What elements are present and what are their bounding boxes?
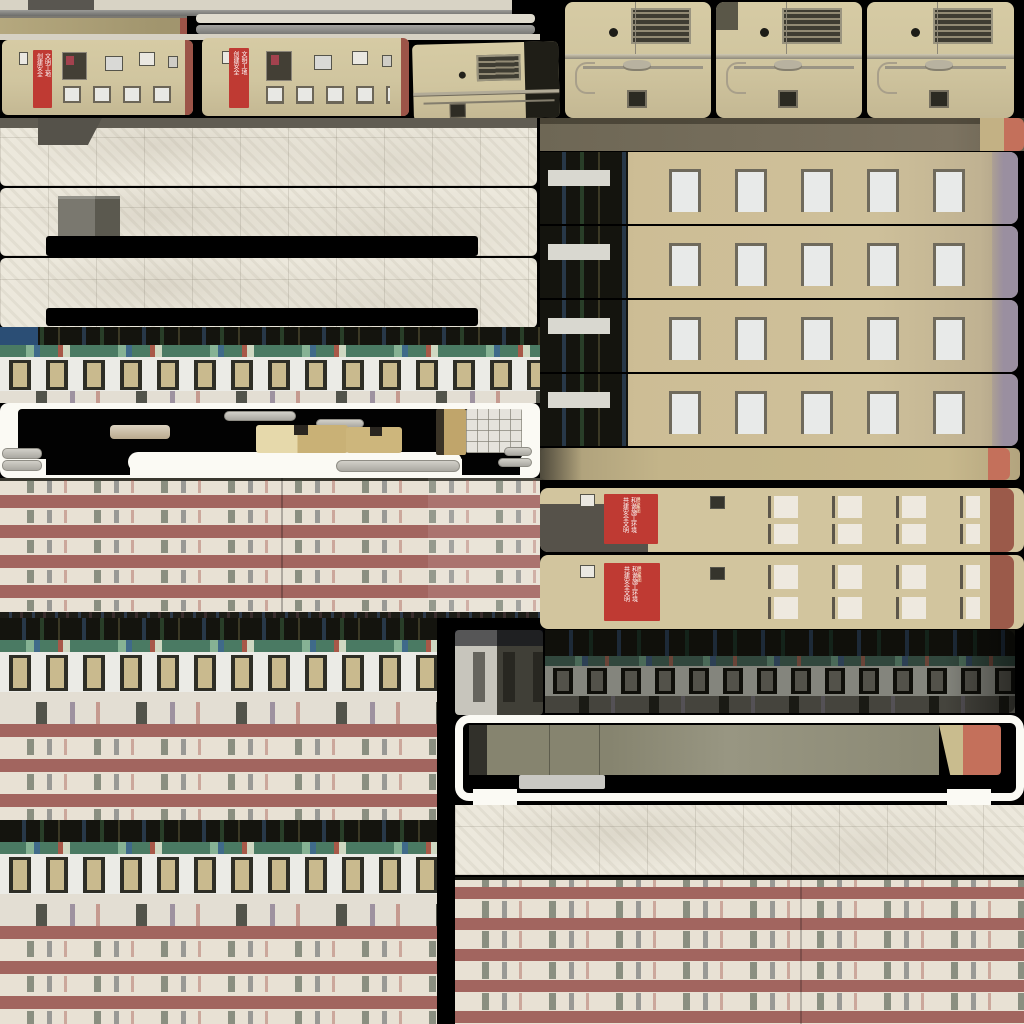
tower-strip-2-windows	[636, 240, 992, 286]
patch-c-dot	[459, 72, 466, 79]
concrete-strip-1	[0, 118, 537, 186]
uv-island-pill-bottom	[336, 460, 460, 472]
balcony-block-2-lower-row	[0, 894, 437, 926]
balcony-block-left-2	[0, 820, 437, 1024]
balcony-block-1-specks-1	[0, 739, 437, 755]
balcony-block-2-window-row	[0, 854, 437, 894]
bracket-beam-seam-2	[599, 725, 600, 775]
tower-strip-plain-dark-end	[540, 448, 582, 480]
shop-facade-lower-row	[0, 391, 540, 403]
patch-b-banner-col2: 文明工地	[239, 51, 247, 108]
concrete-strip-2-black-bar	[46, 236, 478, 256]
tower-strip-1-windows	[636, 166, 992, 212]
patch-d-pipe-1	[565, 54, 711, 59]
split-facade-patch	[455, 630, 543, 715]
split-facade-windows	[455, 652, 543, 702]
uv-island-tan-right-notch	[370, 427, 382, 436]
balcony-block-2-banner-row	[0, 842, 437, 854]
patch-e-dot	[760, 28, 769, 37]
tower-strip-1	[540, 152, 1018, 224]
banner-strip-2: 共建安全文明 和谐施工环境 建设集团	[540, 555, 1024, 629]
pink-block-right	[455, 877, 1024, 1024]
patch-f-wire	[937, 2, 938, 54]
patch-b-window-3	[352, 51, 368, 65]
patch-b-dark-window	[266, 51, 292, 81]
tower-strip-2-dark-end	[540, 226, 628, 298]
patch-a-window-2	[105, 56, 123, 71]
tower-strip-1-dark-end	[540, 152, 628, 224]
uv-panel-black-pocket-left	[46, 453, 130, 475]
balcony-block-2-specks-1	[0, 941, 437, 957]
banner-strip-1-footer: 建设集团	[637, 497, 642, 544]
bracket-frame	[455, 715, 1024, 801]
patch-b-window-2	[314, 55, 332, 70]
facade-patch-c	[412, 41, 560, 121]
tower-strip-3-mauve-edge	[992, 300, 1018, 372]
banner-strip-1-windows-row-b	[740, 524, 980, 544]
balcony-block-2-specks-3	[0, 1011, 437, 1024]
patch-e-hose	[726, 62, 746, 94]
patch-f-dot	[911, 28, 920, 37]
banner-strip-2-footer: 建设集团	[638, 566, 643, 621]
strip-khaki-topline	[0, 16, 187, 18]
banner-strip-1-window-b	[710, 496, 725, 509]
strip-olive-topline	[540, 118, 1024, 124]
banner-strip-1-banner: 共建安全文明 和谐施工环境 建设集团	[604, 494, 658, 544]
balcony-block-2-dark-row	[0, 820, 437, 842]
pink-block-right-seam	[800, 877, 802, 1024]
patch-b-dark-window-light	[271, 55, 279, 65]
patch-d-box	[627, 90, 647, 108]
patch-d-wire	[635, 2, 636, 54]
patch-a-banner-col1: 创建安全	[35, 53, 43, 108]
patch-e-corner-wedge	[716, 2, 738, 30]
tower-strip-3-dark-end	[540, 300, 628, 372]
balcony-block-1-banner-row	[0, 640, 437, 652]
bracket-beam	[469, 725, 939, 775]
patch-f-hose	[877, 62, 897, 94]
strip-olive	[540, 118, 1024, 151]
uv-panel	[0, 403, 540, 478]
uv-island-pill-left-2	[2, 460, 42, 471]
uv-island-pill-br-1	[504, 447, 532, 456]
shop-facade-banner-row	[0, 345, 540, 357]
balcony-block-1-dark-row	[0, 618, 437, 640]
banner-strip-2-red-edge	[990, 555, 1014, 629]
balcony-block-1-specks-2	[0, 774, 437, 790]
banner-strip-2-col2: 和谐施工环境	[630, 566, 638, 621]
pink-block-right-row-1	[455, 880, 1024, 887]
patch-f-box	[929, 90, 949, 108]
balcony-block-1-lower-row	[0, 692, 437, 724]
banner-strip-2-windows-row-a	[740, 565, 980, 589]
banner-strip-1-col2: 和谐施工环境	[629, 497, 637, 544]
tower-strip-plain-salmon-end	[988, 448, 1010, 480]
bracket-beam-seam-1	[549, 725, 550, 775]
strip-beige-top	[0, 0, 512, 10]
patch-b-window-row	[260, 86, 390, 104]
patch-f-basin	[925, 60, 953, 71]
patch-c-grated-window	[476, 54, 521, 81]
bracket-gray-tab	[519, 775, 605, 789]
strip-khaki	[0, 16, 187, 34]
patch-e-wire	[786, 2, 787, 54]
patch-a-window-3	[139, 52, 155, 66]
patch-e-grated-window	[782, 8, 842, 44]
uv-island-pill-top-1	[224, 411, 296, 421]
uv-island-tan-right	[346, 427, 402, 453]
pink-block-right-row-2	[455, 901, 1024, 918]
facade-patch-a: 创建安全 文明工地	[2, 40, 193, 115]
pink-block-right-row-3	[455, 931, 1024, 948]
patch-a-dark-window-light	[66, 56, 74, 65]
banner-strip-2-window-b	[710, 567, 725, 580]
balcony-block-left-1	[0, 618, 437, 820]
facade-patch-e	[716, 2, 862, 118]
patch-d-grated-window	[631, 8, 691, 44]
night-facade-strip	[545, 630, 1015, 713]
tower-strip-2-balcony-slab	[548, 244, 610, 260]
tower-strip-4-dark-end	[540, 374, 628, 446]
tower-strip-4	[540, 374, 1018, 446]
patch-a-small-window	[19, 52, 28, 65]
balcony-block-2-specks-2	[0, 976, 437, 992]
split-facade-top-dark	[455, 630, 543, 646]
shop-facade-blue-box	[0, 327, 38, 345]
pink-block-right-row-4	[455, 962, 1024, 979]
patch-d-hose	[575, 62, 595, 94]
balcony-block-1-window-row	[0, 652, 437, 692]
tower-strip-plain	[540, 448, 1020, 480]
banner-strip-1-col1: 共建安全文明	[621, 497, 629, 544]
banner-strip-1-window-a	[580, 494, 595, 507]
patch-f-pipe-1	[867, 54, 1014, 59]
facade-patch-d	[565, 2, 711, 118]
patch-c-box	[450, 104, 466, 118]
patch-b-window-4	[382, 55, 392, 67]
banner-strip-1-windows-row-a	[740, 496, 980, 518]
concrete-strip-2	[0, 188, 537, 256]
facade-patch-b: 创建安全 文明工地	[202, 38, 409, 116]
tower-strip-3	[540, 300, 1018, 372]
patch-b-banner-col1: 创建安全	[231, 51, 239, 108]
uv-island-tan-big-notch	[294, 425, 308, 435]
banner-strip-1-red-edge	[990, 488, 1014, 552]
patch-a-window-4	[168, 56, 178, 68]
tower-strip-3-windows	[636, 314, 992, 360]
strip-khaki-red-edge	[180, 16, 187, 34]
patch-a-banner-col2: 文明工地	[43, 53, 51, 108]
bracket-frame-group	[455, 715, 1024, 817]
night-facade-right-fade	[545, 630, 1015, 713]
banner-strip-2-col1: 共建安全文明	[622, 566, 630, 621]
bracket-beam-salmon-end	[963, 725, 1001, 775]
strip-gray-bar-2	[196, 25, 535, 34]
tower-strip-2	[540, 226, 1018, 298]
patch-d-basin	[623, 60, 651, 71]
texture-atlas: 创建安全 文明工地 创建安全 文明工地	[0, 0, 1024, 1024]
shop-facade-window-row	[0, 357, 540, 391]
patch-e-pipe-1	[716, 54, 862, 59]
uv-island-tan-big	[256, 425, 348, 453]
strip-olive-salmon-end	[1004, 118, 1024, 151]
tower-strip-3-balcony-slab	[548, 318, 610, 334]
tower-strip-2-mauve-edge	[992, 226, 1018, 298]
facade-patch-f	[867, 2, 1014, 118]
banner-strip-2-banner: 共建安全文明 和谐施工环境 建设集团	[604, 563, 660, 621]
uv-island-pill-left-1	[2, 448, 42, 459]
balcony-block-1-specks-3	[0, 809, 437, 820]
strip-dark-block	[28, 0, 94, 10]
pink-block-left-light-section	[428, 478, 540, 618]
patch-e-basin	[774, 60, 802, 71]
patch-f-grated-window	[933, 8, 993, 44]
concrete-strip-3	[0, 258, 537, 328]
banner-strip-2-window-a	[580, 565, 595, 578]
banner-strip-2-windows-row-b	[740, 597, 980, 619]
patch-a-dark-window	[62, 52, 87, 80]
tower-strip-4-mauve-edge	[992, 374, 1018, 446]
uv-island-tan-small	[110, 425, 170, 439]
concrete-strip-4	[455, 805, 1024, 875]
patch-c-dark-column	[524, 41, 560, 118]
tower-strip-4-windows	[636, 388, 992, 434]
patch-b-red-edge	[401, 38, 409, 116]
shop-facade-balcony-row	[0, 327, 540, 345]
strip-light-bar	[196, 14, 535, 23]
patch-e-box	[778, 90, 798, 108]
tower-strip-1-mauve-edge	[992, 152, 1018, 224]
patch-a-red-edge	[185, 40, 193, 115]
concrete-strip-1-dark-wedge	[38, 118, 102, 145]
shop-facade-strip	[0, 327, 540, 403]
patch-d-dot	[609, 28, 618, 37]
concrete-strip-3-black-bar	[46, 308, 478, 326]
uv-island-column	[436, 409, 466, 455]
banner-strip-1: 共建安全文明 和谐施工环境 建设集团	[540, 488, 1024, 552]
patch-b-banner: 创建安全 文明工地	[229, 48, 249, 108]
pink-block-left	[0, 478, 540, 618]
tower-strip-4-balcony-slab	[548, 392, 610, 408]
pink-block-right-row-5	[455, 993, 1024, 1010]
patch-a-banner: 创建安全 文明工地	[33, 50, 52, 108]
strip-olive-khaki-end	[980, 118, 1004, 151]
tower-strip-1-balcony-slab	[548, 170, 610, 186]
pink-block-left-seam	[281, 478, 283, 618]
uv-island-pill-br-2	[498, 458, 532, 467]
patch-a-window-row	[57, 86, 182, 103]
